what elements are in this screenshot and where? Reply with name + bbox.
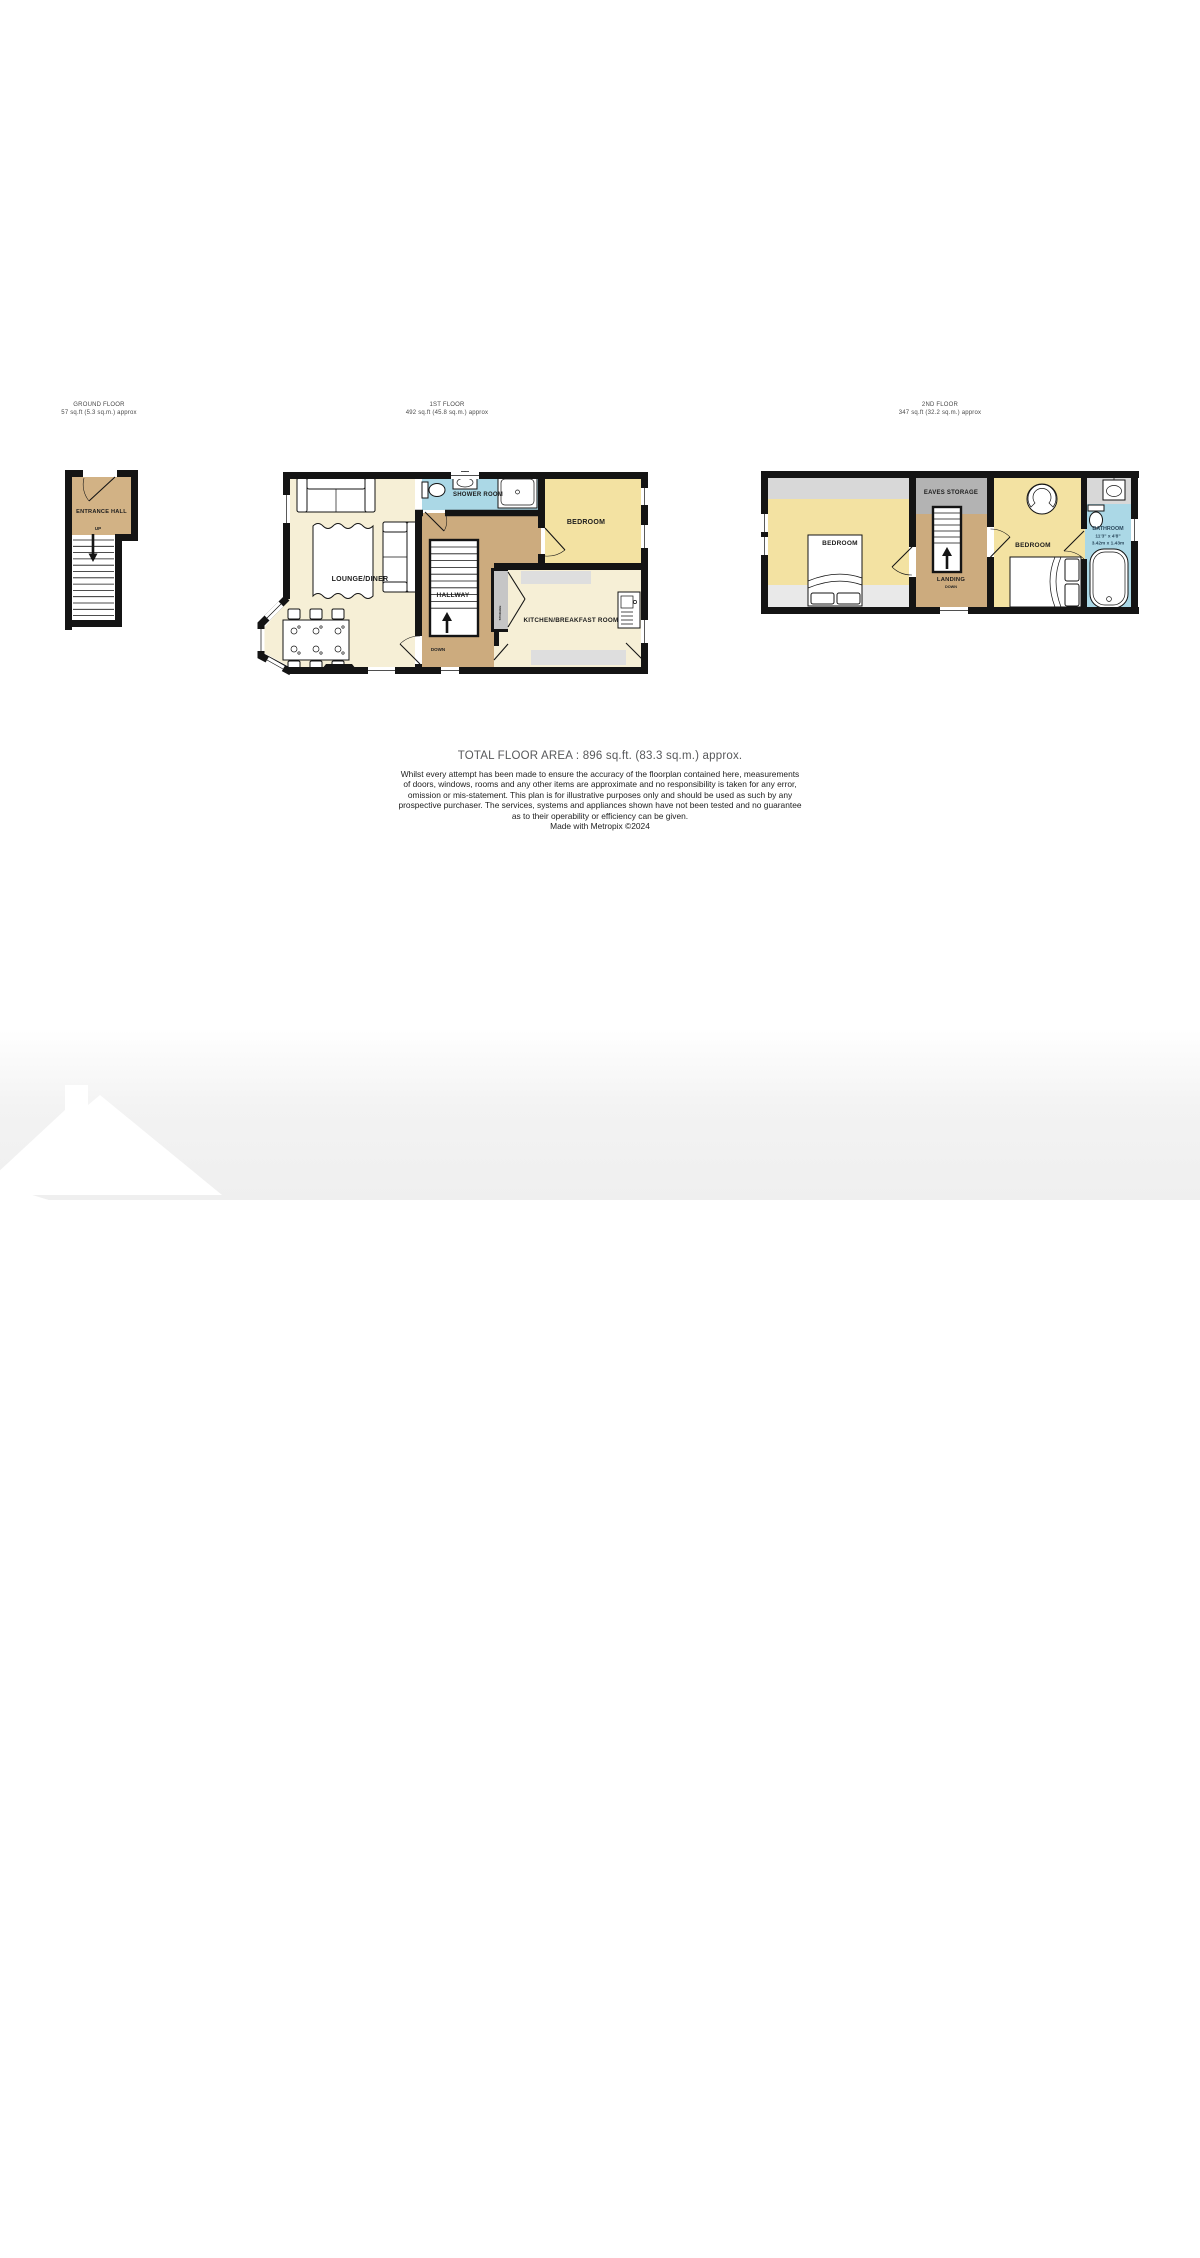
- disclaimer-line: as to their operability or efficiency ca…: [0, 811, 1200, 821]
- disclaimer-line: prospective purchaser. The services, sys…: [0, 800, 1200, 810]
- disclaimer-line: Whilst every attempt has been made to en…: [0, 769, 1200, 779]
- room-label-eaves-storage: EAVES STORAGE: [924, 490, 978, 496]
- second-floor-area: 347 sq.ft (32.2 sq.m.) approx: [850, 410, 1030, 418]
- entrance-hall-area: [72, 477, 131, 535]
- storage-closet: [492, 568, 508, 632]
- room-label-bedroom-right: BEDROOM: [1015, 542, 1051, 549]
- first-floor-area: 492 sq.ft (45.8 sq.m.) approx: [357, 410, 537, 418]
- disclaimer: Whilst every attempt has been made to en…: [0, 769, 1200, 831]
- house-logo-icon: [0, 1070, 225, 1202]
- second-floor-caption: 2ND FLOOR 347 sq.ft (32.2 sq.m.) approx: [850, 402, 1030, 417]
- watermark-band: MR. GREEN: [0, 1030, 1200, 1200]
- bedroom-left-eaves-top: [768, 478, 909, 499]
- room-label-kitchen: KITCHEN/BREAKFAST ROOM: [523, 617, 618, 624]
- room-label-entrance-hall: ENTRANCE HALL: [76, 509, 127, 515]
- disclaimer-line: of doors, windows, rooms and any other i…: [0, 779, 1200, 789]
- room-label-bedroom-1f: BEDROOM: [567, 519, 605, 526]
- room-label-hallway: HALLWAY: [437, 592, 470, 599]
- kitchen-counter-bottom: [531, 650, 626, 665]
- room-label-storage: STORAGE: [498, 606, 502, 621]
- floorplan-page: { "floors": { "ground": { "name": "GROUN…: [0, 0, 1200, 1200]
- second-floor-name: 2ND FLOOR: [850, 402, 1030, 410]
- metropix-credit: Made with Metropix ©2024: [0, 821, 1200, 831]
- down-label-1f: DOWN: [431, 647, 445, 652]
- ground-floor-area: 57 sq.ft (5.3 sq.m.) approx: [9, 410, 189, 418]
- bathroom-dims-imperial: 11'3" x 4'8": [1095, 534, 1120, 540]
- second-floor-plan: BEDROOM EAVES STORAGE LANDING DOWN BEDRO…: [759, 469, 1141, 616]
- total-floor-area: TOTAL FLOOR AREA : 896 sq.ft. (83.3 sq.m…: [0, 750, 1200, 762]
- first-floor-caption: 1ST FLOOR 492 sq.ft (45.8 sq.m.) approx: [357, 402, 537, 417]
- ground-floor-plan: ENTRANCE HALL UP: [63, 469, 140, 631]
- footer-block: TOTAL FLOOR AREA : 896 sq.ft. (83.3 sq.m…: [0, 750, 1200, 831]
- down-label-2f: DOWN: [945, 585, 957, 589]
- bathroom-dims-metric: 3.42m x 1.43m: [1092, 541, 1125, 547]
- watermark-partial-line: [400, 2198, 990, 2258]
- room-label-bathroom: BATHROOM: [1092, 526, 1124, 532]
- second-floor-stairs: [933, 507, 961, 572]
- ground-floor-name: GROUND FLOOR: [9, 402, 189, 410]
- first-floor-name: 1ST FLOOR: [357, 402, 537, 410]
- first-floor-stairs: [430, 540, 478, 636]
- room-label-shower: SHOWER ROOM: [453, 492, 503, 498]
- ground-floor-caption: GROUND FLOOR 57 sq.ft (5.3 sq.m.) approx: [9, 402, 189, 417]
- kitchen-counter-top: [521, 571, 591, 584]
- room-label-landing: LANDING: [937, 577, 965, 583]
- disclaimer-line: omission or mis-statement. This plan is …: [0, 790, 1200, 800]
- up-label: UP: [95, 526, 101, 531]
- first-floor-plan: SHOWER ROOM BEDROOM LOUNGE/DINER HALLWAY…: [255, 468, 651, 683]
- room-label-bedroom-left: BEDROOM: [822, 540, 858, 547]
- room-label-lounge: LOUNGE/DINER: [332, 576, 389, 583]
